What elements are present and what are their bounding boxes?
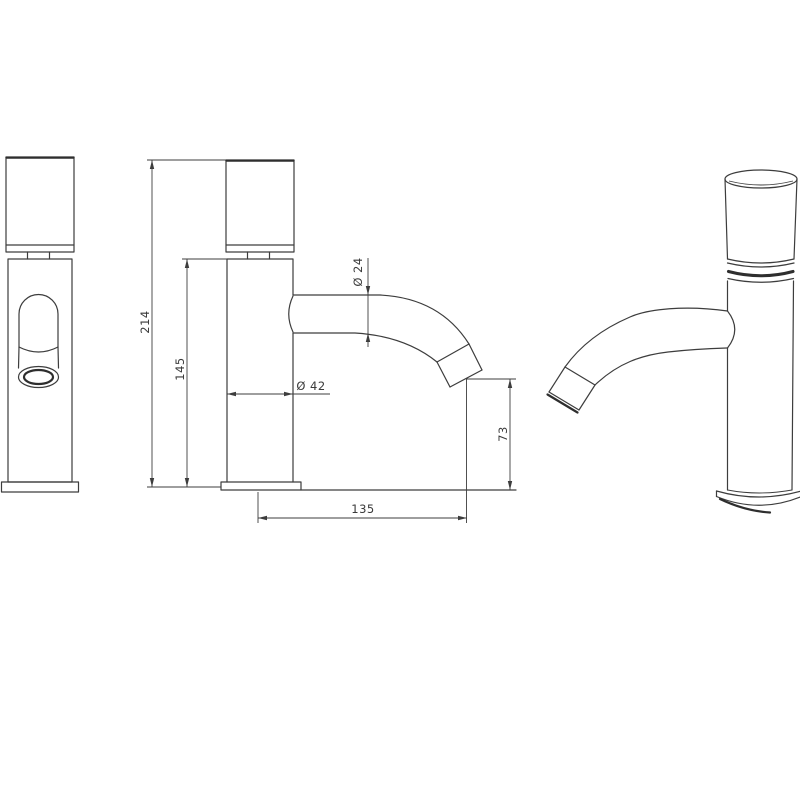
dim-spout-reach: 135	[258, 502, 467, 520]
spout-root-arc	[289, 296, 293, 332]
dim-label-spout-diameter: Ø 24	[351, 257, 365, 286]
dimensions: 214 145 Ø 24 Ø 42 73	[138, 160, 516, 523]
aerator-line	[565, 367, 595, 385]
cap-top-inner-rim	[729, 181, 793, 185]
dim-body-diameter: Ø 42	[227, 379, 330, 396]
dim-label-outlet-height: 73	[496, 426, 510, 442]
cap-outline	[6, 157, 74, 252]
arrowhead-left	[227, 392, 236, 396]
arrowhead-down	[508, 481, 512, 490]
dim-label-body-diameter: Ø 42	[296, 379, 325, 393]
faucet-dimension-drawing: 214 145 Ø 24 Ø 42 73	[0, 0, 800, 800]
aerator-line	[437, 344, 469, 362]
technical-drawing-canvas: 214 145 Ø 24 Ø 42 73	[0, 0, 800, 800]
arrowhead-left	[258, 516, 267, 520]
dim-label-spout-reach: 135	[351, 502, 374, 516]
front-view	[2, 157, 79, 492]
spout-front-outline	[19, 295, 58, 348]
dim-label-overall-height: 214	[138, 310, 152, 333]
arrowhead-down	[185, 478, 189, 487]
spout-tip-side-upper	[549, 367, 565, 392]
outlet-dark-edge	[548, 395, 578, 413]
cap-sides	[725, 179, 797, 259]
outlet-face	[549, 392, 579, 410]
dim-outlet-height: 73	[496, 379, 512, 490]
arrowhead-up	[508, 379, 512, 388]
perspective-view	[548, 170, 800, 513]
spout-bottom-edge	[293, 333, 437, 362]
neck-ticks	[28, 252, 50, 259]
arrowhead-up	[150, 160, 154, 169]
arrowhead-right	[284, 392, 293, 396]
body-outline	[227, 259, 293, 482]
outlet-inner-rim	[24, 370, 53, 384]
arrowhead-up	[185, 259, 189, 268]
arrowhead-right	[458, 516, 467, 520]
base-flange-top-arc	[717, 491, 800, 497]
body-sides	[728, 281, 794, 490]
spout-section-arc	[19, 347, 58, 352]
spout-tip-side-lower	[579, 385, 595, 410]
arrowhead-down	[150, 478, 154, 487]
arrowhead-down	[366, 286, 370, 295]
dim-body-height: 145	[173, 259, 189, 487]
spout-top-edge	[565, 308, 728, 367]
spout-root-arc	[728, 311, 735, 348]
body-bottom-arc	[728, 490, 793, 493]
spout-tip-sides	[19, 347, 59, 368]
cap-bottom-arc	[728, 259, 795, 263]
dim-label-body-height: 145	[173, 357, 187, 380]
side-view	[221, 160, 516, 490]
collar-lower-arc	[728, 279, 794, 283]
cap-outline	[226, 160, 294, 252]
base-flange	[2, 482, 79, 492]
base-flange	[221, 482, 301, 490]
spout-tip-sides	[437, 344, 482, 387]
collar-dark-ring	[729, 272, 794, 276]
outlet-face	[450, 370, 482, 387]
dim-overall-height: 214	[138, 160, 154, 487]
spout-bottom-edge	[595, 348, 728, 385]
neck-ticks	[248, 252, 270, 259]
